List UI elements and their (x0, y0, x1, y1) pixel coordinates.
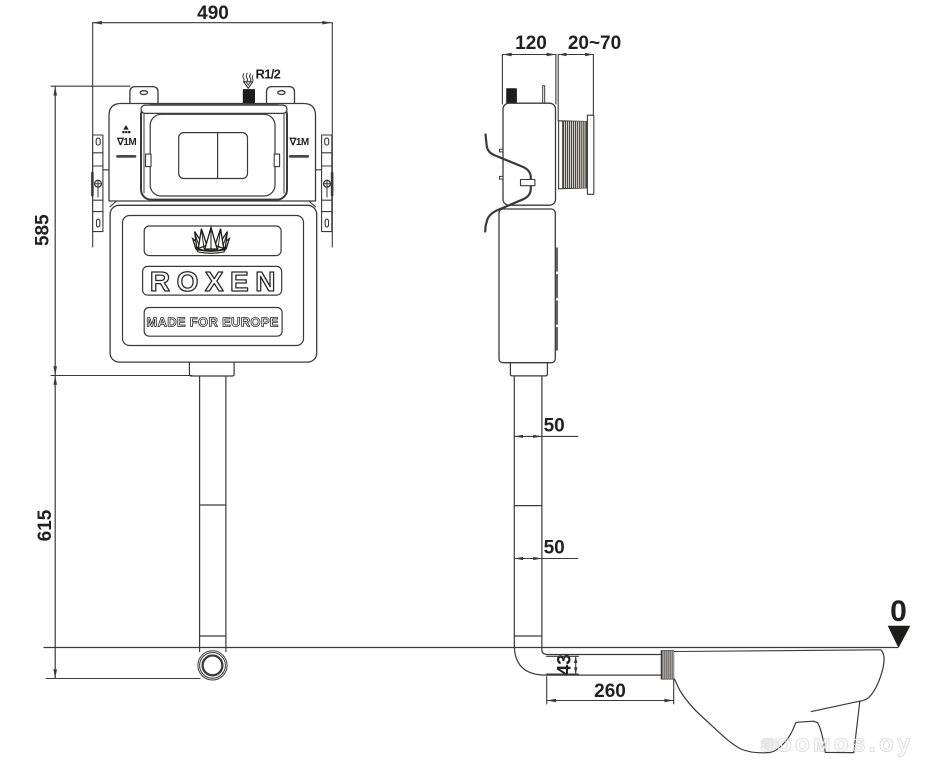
svg-text:∇1M: ∇1M (116, 137, 136, 148)
svg-text:MADE FOR EUROPE: MADE FOR EUROPE (146, 315, 278, 330)
svg-text:585: 585 (33, 214, 54, 246)
svg-text:490: 490 (197, 3, 229, 24)
svg-text:R1/2: R1/2 (256, 67, 281, 82)
svg-text:20~70: 20~70 (568, 33, 621, 54)
svg-text:эоомоѕ.оу: эоомоѕ.оу (760, 731, 914, 758)
svg-text:ROXEN: ROXEN (150, 266, 282, 297)
svg-text:50: 50 (544, 538, 565, 559)
svg-text:0: 0 (890, 595, 907, 628)
svg-text:260: 260 (594, 681, 626, 702)
svg-text:615: 615 (35, 509, 56, 541)
svg-text:50: 50 (544, 416, 565, 437)
svg-text:120: 120 (515, 33, 547, 54)
svg-text:43: 43 (555, 654, 576, 675)
svg-text:∇1M: ∇1M (289, 137, 309, 148)
